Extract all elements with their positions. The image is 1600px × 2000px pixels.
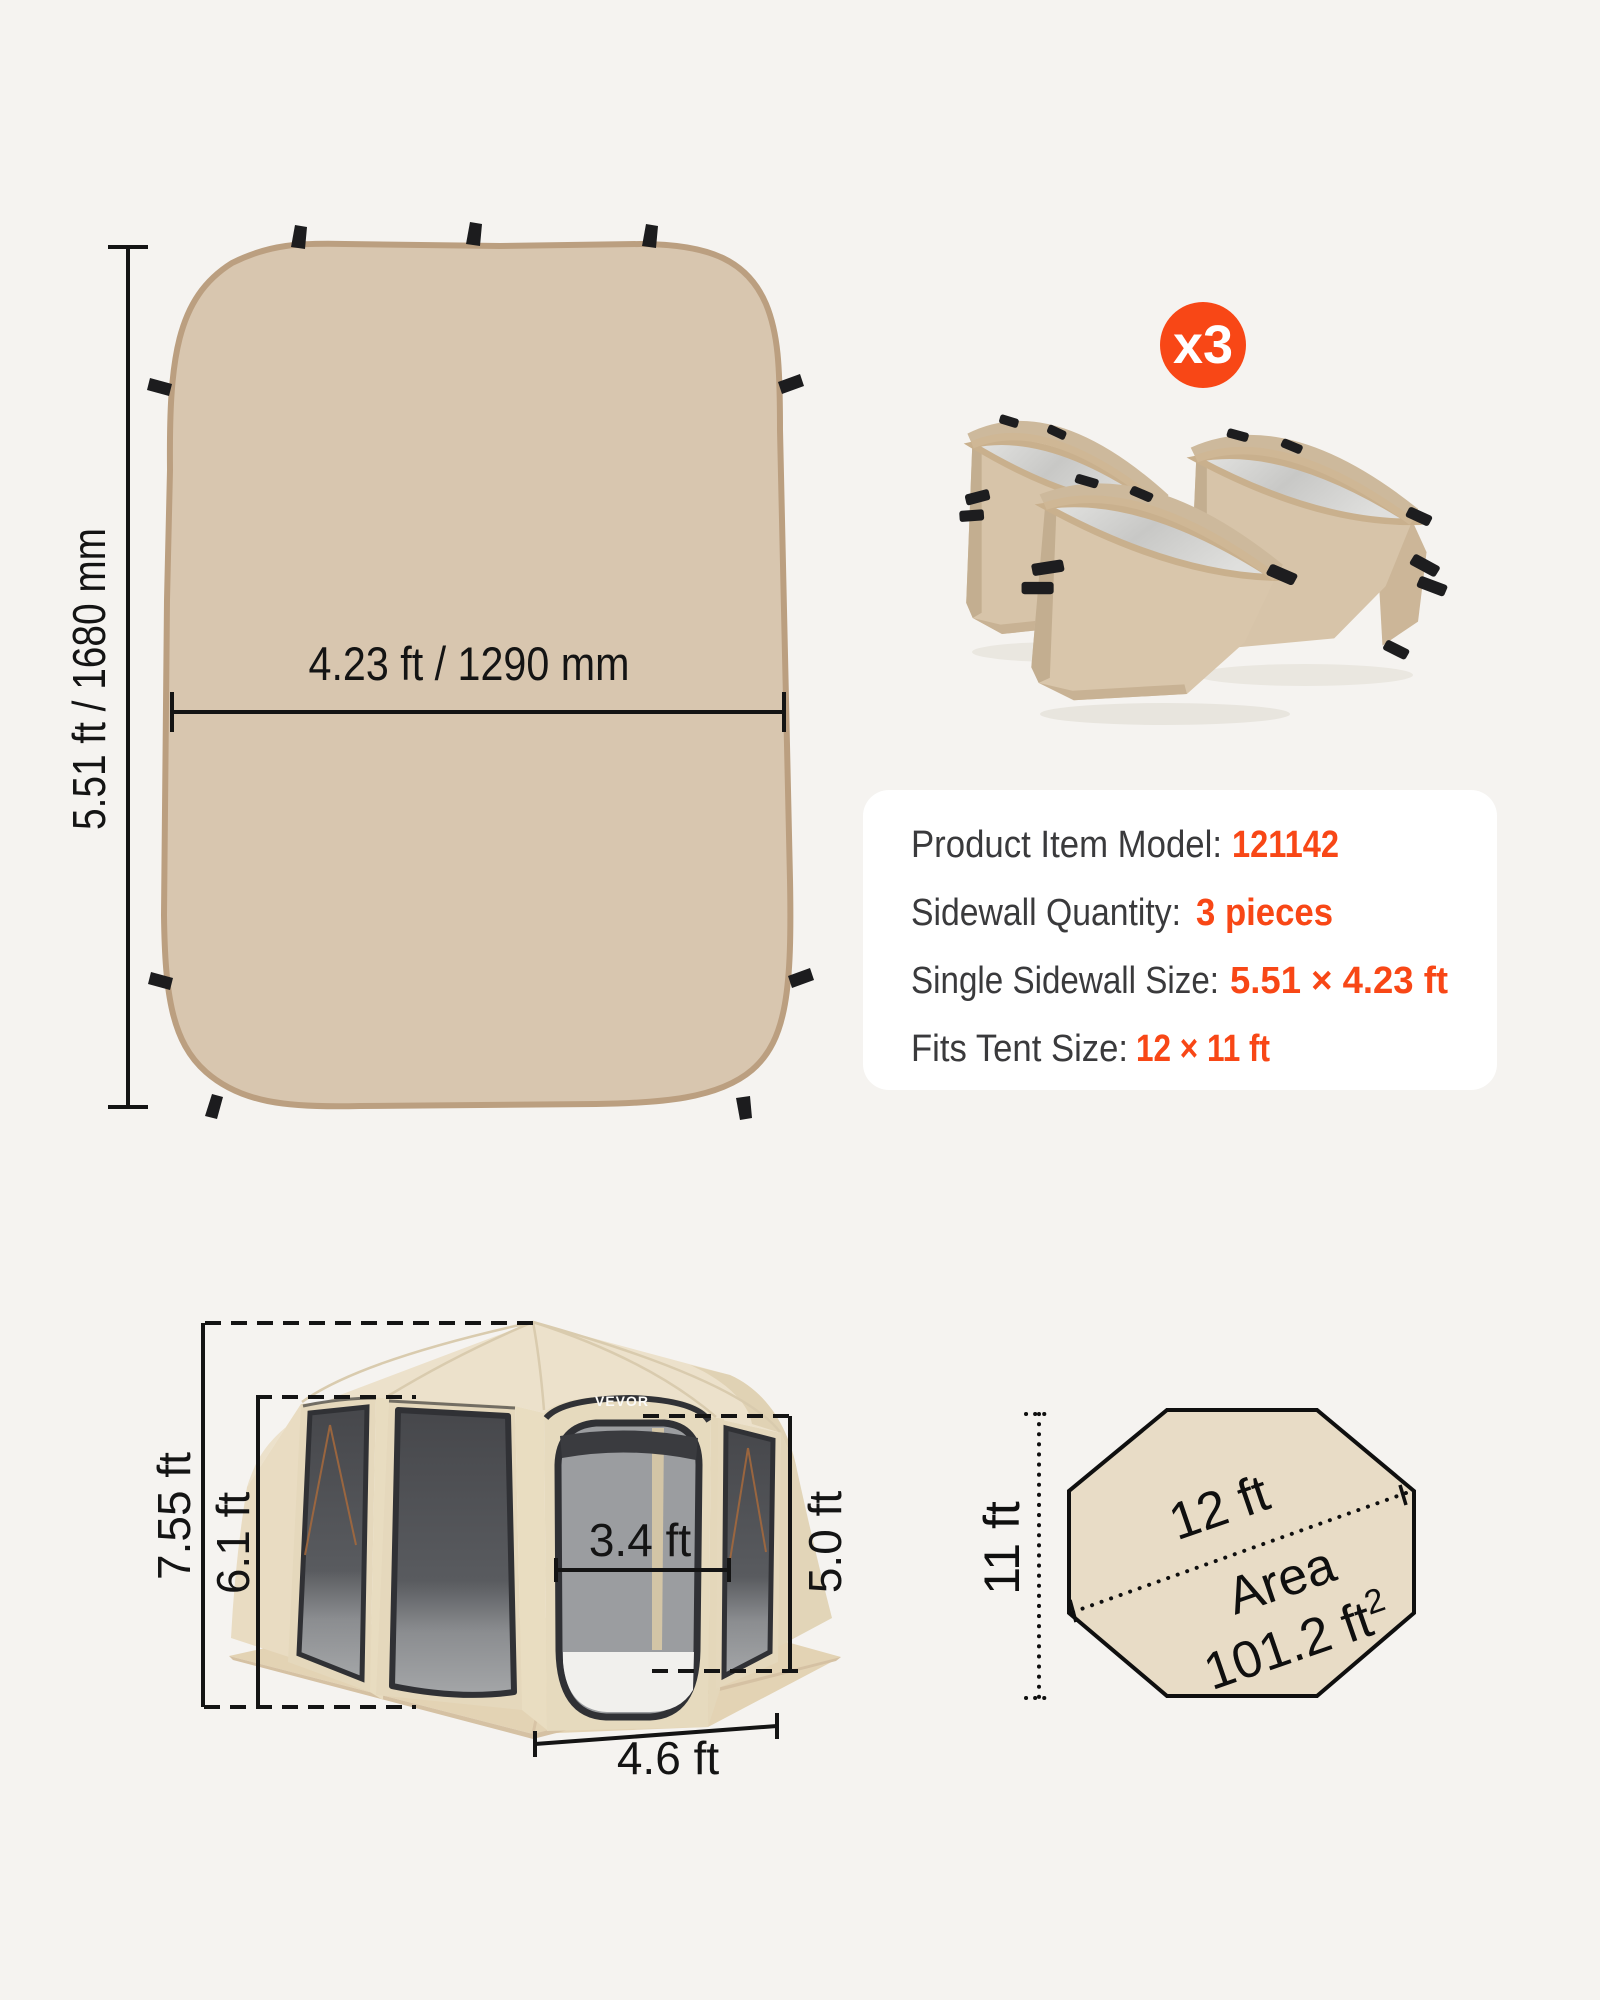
svg-text:Fits Tent Size:: Fits Tent Size:	[911, 1028, 1128, 1070]
svg-text:4.23 ft / 1290 mm: 4.23 ft / 1290 mm	[309, 637, 630, 690]
svg-text:12 × 11 ft: 12 × 11 ft	[1136, 1028, 1270, 1070]
svg-text:3.4 ft: 3.4 ft	[589, 1514, 692, 1566]
svg-text:Product Item Model:: Product Item Model:	[911, 824, 1222, 866]
svg-text:4.6 ft: 4.6 ft	[617, 1732, 720, 1784]
svg-text:VEVOR: VEVOR	[595, 1393, 649, 1409]
svg-text:7.55 ft: 7.55 ft	[148, 1452, 200, 1580]
svg-text:121142: 121142	[1232, 824, 1339, 866]
svg-text:Single Sidewall Size:: Single Sidewall Size:	[911, 960, 1219, 1002]
svg-text:5.51 ft / 1680 mm: 5.51 ft / 1680 mm	[63, 528, 115, 830]
svg-text:11 ft: 11 ft	[974, 1501, 1030, 1595]
svg-text:6.1 ft: 6.1 ft	[207, 1492, 259, 1595]
svg-text:5.0 ft: 5.0 ft	[799, 1491, 851, 1594]
svg-text:x3: x3	[1173, 315, 1233, 375]
svg-text:Sidewall Quantity:: Sidewall Quantity:	[911, 892, 1181, 934]
svg-text:5.51 × 4.23 ft: 5.51 × 4.23 ft	[1230, 960, 1448, 1002]
svg-text:3 pieces: 3 pieces	[1196, 892, 1333, 934]
